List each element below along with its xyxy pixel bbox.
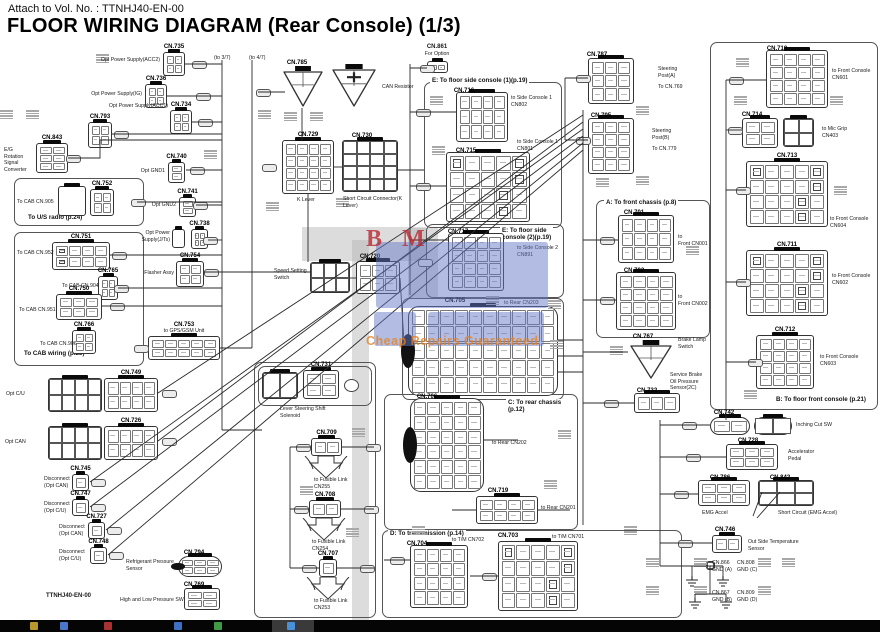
wire	[108, 150, 583, 555]
wiring-diagram-page: Attach to Vol. No. : TTNHJ40-EN-00 FLOOR…	[0, 0, 880, 632]
taskbar-app-icon-2[interactable]	[60, 622, 68, 630]
watermark-letters: B M	[366, 226, 432, 253]
taskbar-app-icon-active[interactable]	[287, 622, 295, 630]
taskbar-app-icon-3[interactable]	[104, 622, 112, 630]
watermark-tagline: Cheap Repairs Guaranteed	[366, 334, 538, 348]
wire	[68, 140, 222, 158]
taskbar[interactable]	[0, 620, 880, 632]
taskbar-app-icon-4[interactable]	[174, 622, 182, 630]
wire	[753, 492, 762, 516]
taskbar-app-icon-1[interactable]	[30, 622, 38, 630]
taskbar-app-icon-5[interactable]	[214, 622, 222, 630]
